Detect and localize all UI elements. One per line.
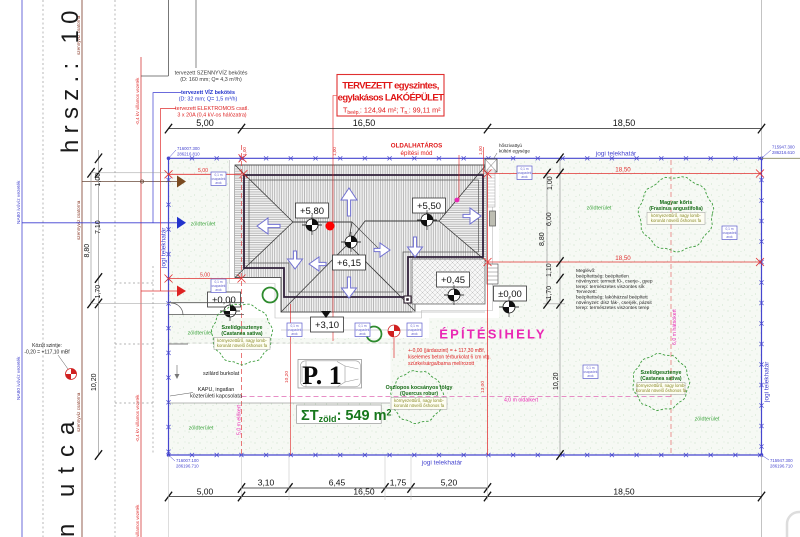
- svg-text:6,45: 6,45: [329, 478, 346, 488]
- svg-text:1,00: 1,00: [95, 173, 102, 187]
- svg-text:zöldterület: zöldterület: [189, 426, 214, 432]
- svg-text:16,50: 16,50: [353, 118, 376, 128]
- svg-text:286196.710: 286196.710: [176, 463, 199, 468]
- svg-text:arok: arok: [587, 374, 594, 378]
- svg-text:arok: arok: [215, 288, 222, 292]
- svg-text:5,0 m előkert: 5,0 m előkert: [237, 404, 243, 435]
- svg-text:ÉPÍTÉSIHELY: ÉPÍTÉSIHELY: [439, 327, 547, 342]
- svg-text:szennyvíz csatorna: szennyvíz csatorna: [76, 200, 81, 240]
- svg-text:arok: arok: [215, 181, 222, 185]
- svg-text:közterületi kapcsolata: közterületi kapcsolata: [190, 394, 242, 400]
- svg-text:7,10: 7,10: [95, 220, 102, 234]
- svg-text:zöldterület: zöldterület: [695, 417, 720, 423]
- svg-text:8,80: 8,80: [539, 232, 546, 246]
- svg-text:terep: természetes viszontes t: terep: természetes viszontes terep: [576, 305, 650, 311]
- svg-text:5,00: 5,00: [196, 118, 214, 128]
- svg-text:beépítettség: beépítetlen: beépítettség: beépítetlen: [576, 273, 629, 279]
- svg-text:hrsz.: 10: hrsz.: 10: [57, 4, 84, 153]
- svg-text:koronát növelő őshonos fa: koronát növelő őshonos fa: [651, 218, 702, 223]
- svg-text:716007.300: 716007.300: [177, 146, 200, 151]
- svg-text:1,00: 1,00: [547, 176, 554, 190]
- svg-text:kiselemes beton térburkolat 6: kiselemes beton térburkolat 6 cm vtg.: [408, 355, 491, 361]
- svg-text:beépítettség: lakóházzal beépí: beépítettség: lakóházzal beépített: [576, 295, 648, 301]
- svg-text:(D: 160 mm; Q= 4,3 m³/h): (D: 160 mm; Q= 4,3 m³/h): [180, 77, 242, 83]
- svg-text:zöldterület: zöldterület: [587, 206, 612, 212]
- svg-text:5,00: 5,00: [197, 487, 214, 497]
- svg-text:286216.810: 286216.810: [177, 151, 200, 156]
- svg-text:jogi telekhatár: jogi telekhatár: [764, 361, 771, 403]
- svg-text:tervezett VÍZ bekötés: tervezett VÍZ bekötés: [181, 88, 235, 96]
- svg-text:18,50: 18,50: [615, 167, 631, 174]
- svg-text:(Castanea sativa): (Castanea sativa): [221, 331, 262, 337]
- svg-text:16,50: 16,50: [353, 487, 375, 497]
- svg-text:-0,20 = +117,10 mBf: -0,20 = +117,10 mBf: [24, 350, 70, 356]
- svg-text:5,00: 5,00: [198, 168, 208, 174]
- svg-text:10,20: 10,20: [553, 372, 560, 390]
- svg-text:+6,15: +6,15: [337, 258, 361, 269]
- svg-text:Oszlopos kocsányos tölgy: Oszlopos kocsányos tölgy: [386, 385, 453, 391]
- svg-text:jogi telekhatár: jogi telekhatár: [421, 460, 463, 467]
- svg-text:arok: arok: [521, 175, 528, 179]
- svg-text:koronát növelő őshonos fa: koronát növelő őshonos fa: [636, 388, 687, 393]
- svg-text:18,50: 18,50: [615, 255, 631, 262]
- svg-text:715947.300: 715947.300: [772, 145, 795, 150]
- svg-text:18,50: 18,50: [613, 487, 635, 497]
- svg-text:Magyar kőris: Magyar kőris: [660, 200, 693, 206]
- svg-text:zöldterület: zöldterület: [191, 222, 216, 228]
- svg-text:arok: arok: [726, 235, 733, 239]
- svg-text:(Quercus robur): (Quercus robur): [400, 391, 438, 397]
- svg-text:1,70: 1,70: [95, 285, 102, 299]
- svg-text:építési mód: építési mód: [401, 150, 434, 157]
- svg-text:Szelídgesztenye: Szelídgesztenye: [222, 325, 263, 331]
- svg-text:szilárd burkolat: szilárd burkolat: [203, 371, 240, 377]
- svg-text:TERVEZETT egyszintes,: TERVEZETT egyszintes,: [342, 81, 439, 92]
- svg-text:18,50: 18,50: [613, 118, 636, 128]
- svg-text:zöldterület: zöldterület: [188, 331, 213, 337]
- svg-text:jogi telekhatár: jogi telekhatár: [595, 151, 637, 158]
- svg-text:4,0 m oldalkert: 4,0 m oldalkert: [504, 398, 539, 404]
- svg-text:±0,00: ±0,00: [498, 289, 522, 300]
- svg-text:1,00: 1,00: [478, 146, 483, 155]
- svg-text:koronát növelő őshonos fa: koronát növelő őshonos fa: [394, 403, 445, 408]
- svg-text:KAPU, ingatlan: KAPU, ingatlan: [198, 387, 235, 393]
- svg-text:-0,4 kV villamos vezeték: -0,4 kV villamos vezeték: [135, 394, 140, 442]
- svg-text:szürke/sárga/barna melírozott: szürke/sárga/barna melírozott: [408, 361, 475, 367]
- svg-text:+3,10: +3,10: [315, 320, 339, 331]
- svg-text:6,0 m hátsókert: 6,0 m hátsókert: [672, 309, 678, 345]
- svg-text:növényzet: termett fű-, cserje: növényzet: termett fű-, cserje-, gyep: [576, 279, 653, 285]
- svg-text:egylakásos LAKÓÉPÜLET: egylakásos LAKÓÉPÜLET: [338, 92, 444, 104]
- svg-text:-0,4 kV villamos vezeték: -0,4 kV villamos vezeték: [135, 504, 140, 537]
- svg-text:286196.710: 286196.710: [770, 463, 793, 468]
- svg-text:NA80 ivóvíz vezeték: NA80 ivóvíz vezeték: [16, 180, 22, 224]
- svg-text:Tervezett:: Tervezett:: [576, 289, 597, 295]
- svg-text:jogi telekhatár: jogi telekhatár: [161, 227, 168, 269]
- svg-text:8,80: 8,80: [84, 244, 91, 258]
- svg-text:ΣTzöld: 549 m2: ΣTzöld: 549 m2: [301, 407, 392, 424]
- svg-text:10,20: 10,20: [284, 371, 290, 383]
- svg-text:5,00: 5,00: [200, 273, 210, 279]
- svg-text:koronát növelő őshonos fa: koronát növelő őshonos fa: [217, 343, 268, 348]
- svg-text:tervezett ELEKTROMOS csatl.: tervezett ELEKTROMOS csatl.: [175, 106, 249, 112]
- svg-text:OLDALHATÁROS: OLDALHATÁROS: [391, 143, 442, 150]
- svg-text:-0,4 kV villamos vezeték: -0,4 kV villamos vezeték: [135, 77, 140, 125]
- svg-text:(Castanea sativa): (Castanea sativa): [640, 376, 681, 382]
- svg-text:+-0,00 (járdaszint) = + 117,30: +-0,00 (járdaszint) = + 117,30 mBf,: [408, 348, 485, 354]
- svg-text:+5,50: +5,50: [417, 201, 441, 212]
- svg-text:terep: természetes viszontes s: terep: természetes viszontes sík: [576, 284, 645, 290]
- svg-text:715947.300: 715947.300: [770, 458, 793, 463]
- svg-text:1,00: 1,00: [242, 147, 247, 156]
- svg-text:(Fraxinus angustifolia): (Fraxinus angustifolia): [649, 206, 703, 212]
- svg-text:1,75: 1,75: [390, 478, 407, 488]
- svg-text:arok: arok: [291, 332, 298, 336]
- svg-text:3,10: 3,10: [258, 478, 275, 488]
- svg-text:hőszivattyú: hőszivattyú: [499, 143, 522, 148]
- svg-text:286216.610: 286216.610: [772, 150, 795, 155]
- svg-text:Szelídgesztenye: Szelídgesztenye: [641, 370, 682, 376]
- svg-text:716007.100: 716007.100: [176, 458, 199, 463]
- svg-text:arok: arok: [411, 332, 418, 336]
- svg-text:kültéri egysége: kültéri egysége: [499, 149, 530, 154]
- svg-text:n utca: n utca: [53, 412, 80, 537]
- svg-text:5,20: 5,20: [441, 478, 458, 488]
- svg-text:(D: 32 mm; Q= 1,5 m³/h): (D: 32 mm; Q= 1,5 m³/h): [179, 97, 238, 103]
- svg-text:Meglévő:: Meglévő:: [576, 268, 595, 274]
- svg-text:10,20: 10,20: [91, 373, 98, 391]
- svg-text:13,00: 13,00: [480, 381, 486, 393]
- svg-text:NA80 ivóvíz vezeték: NA80 ivóvíz vezeték: [16, 356, 22, 400]
- svg-text:1,00: 1,00: [332, 147, 337, 156]
- svg-text:±0,00: ±0,00: [212, 295, 236, 306]
- svg-text:tervezett SZENNYVÍZ bekötés: tervezett SZENNYVÍZ bekötés: [175, 70, 248, 77]
- svg-text:P. 1: P. 1: [302, 361, 342, 390]
- svg-text:Közút szintje:: Közút szintje:: [32, 343, 62, 349]
- svg-text:növényzet: dísz fák-, cserjék,: növényzet: dísz fák-, cserjék, pázsit: [576, 300, 652, 306]
- svg-text:arok: arok: [359, 332, 366, 336]
- svg-text:+0,45: +0,45: [441, 275, 465, 286]
